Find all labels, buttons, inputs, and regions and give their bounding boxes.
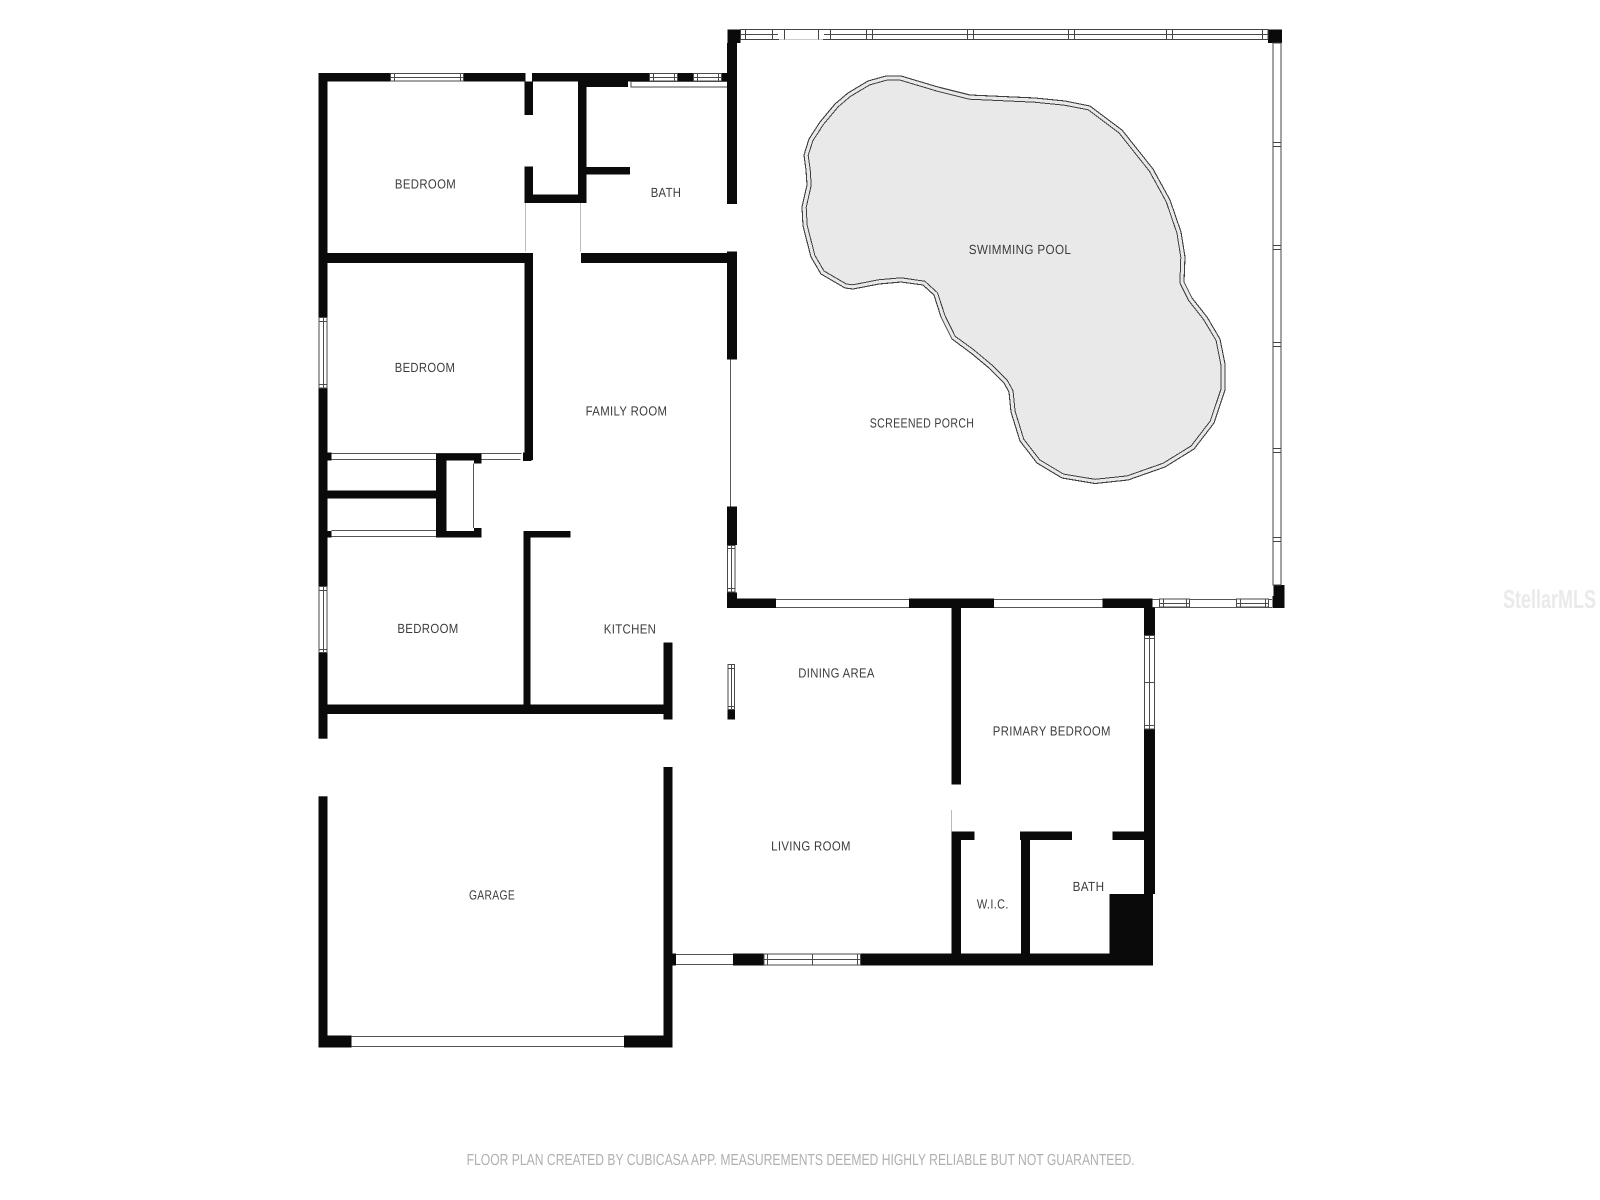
svg-text:W.I.C.: W.I.C. [977, 896, 1009, 911]
svg-text:BEDROOM: BEDROOM [395, 177, 456, 192]
svg-text:FLOOR PLAN CREATED BY CUBICASA: FLOOR PLAN CREATED BY CUBICASA APP. MEAS… [467, 1152, 1135, 1169]
svg-text:StellarMLS: StellarMLS [1503, 584, 1596, 614]
svg-text:BEDROOM: BEDROOM [395, 360, 456, 375]
svg-text:SWIMMING POOL: SWIMMING POOL [969, 242, 1072, 257]
svg-text:KITCHEN: KITCHEN [604, 622, 657, 637]
svg-text:PRIMARY BEDROOM: PRIMARY BEDROOM [993, 724, 1111, 739]
svg-text:LIVING ROOM: LIVING ROOM [771, 838, 851, 853]
svg-text:GARAGE: GARAGE [469, 888, 515, 903]
svg-text:BEDROOM: BEDROOM [397, 621, 458, 636]
svg-text:BATH: BATH [1073, 879, 1105, 894]
svg-text:FAMILY ROOM: FAMILY ROOM [586, 404, 668, 419]
svg-text:BATH: BATH [651, 185, 682, 200]
svg-text:DINING AREA: DINING AREA [798, 666, 875, 681]
svg-text:SCREENED PORCH: SCREENED PORCH [870, 415, 975, 430]
